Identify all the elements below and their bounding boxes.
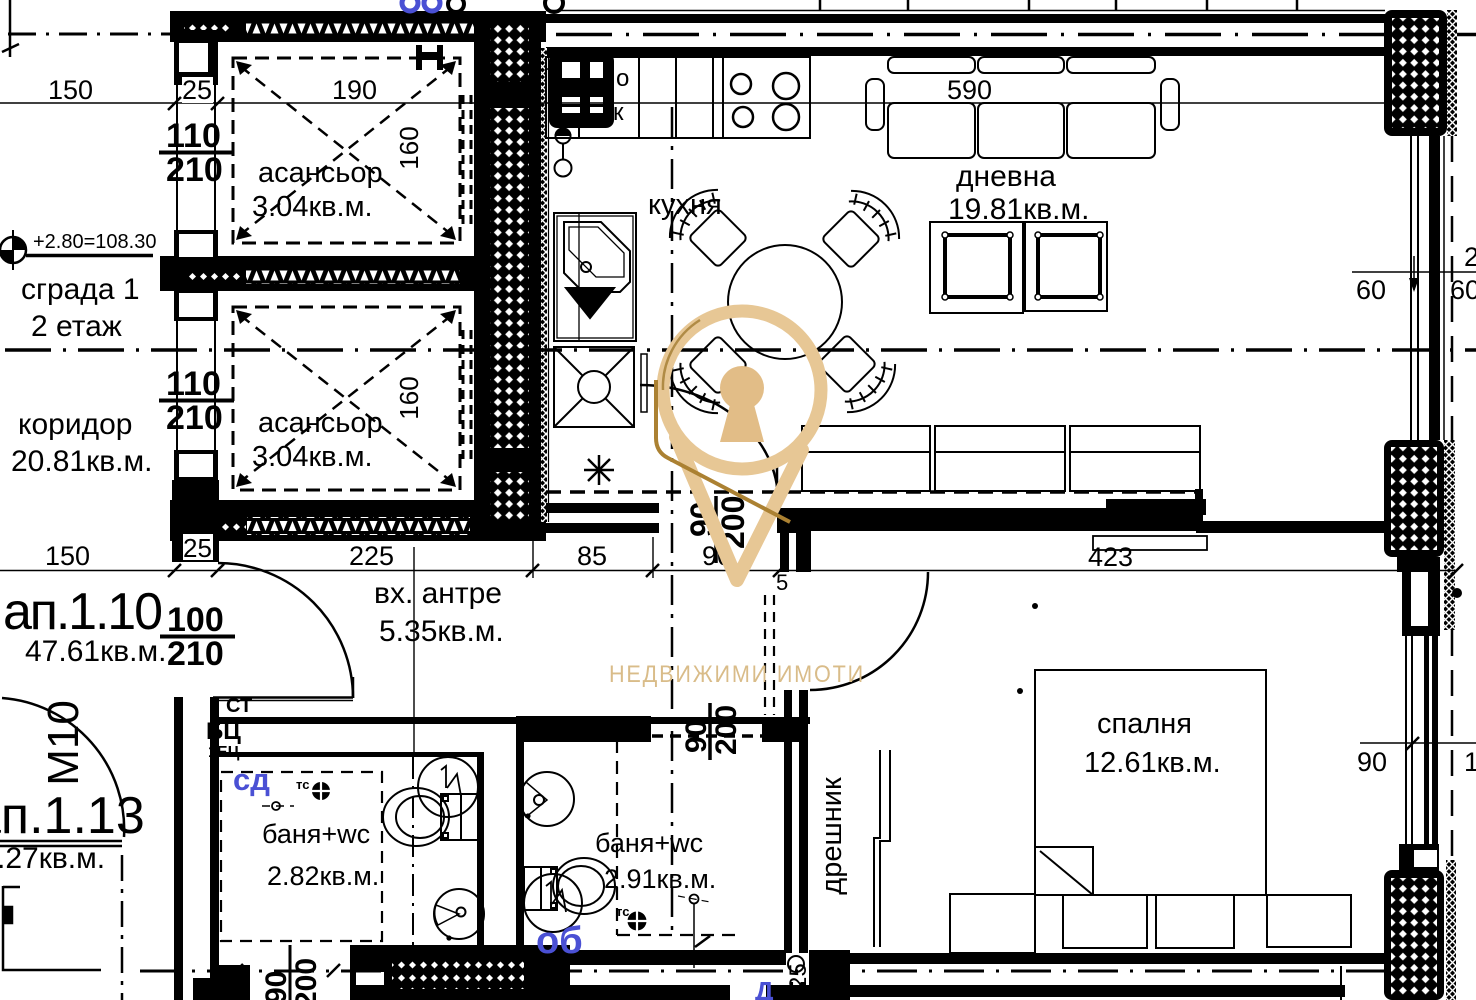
svg-text:+2.80=108.30: +2.80=108.30 — [33, 231, 156, 253]
svg-text:вх. антре: вх. антре — [374, 577, 502, 610]
svg-text:90: 90 — [260, 971, 293, 1000]
svg-text:110: 110 — [166, 365, 221, 403]
svg-text:спалня: спалня — [1097, 708, 1192, 740]
svg-text:ИА: ИА — [788, 976, 826, 1000]
svg-text:сд: сд — [233, 762, 270, 797]
svg-text:60: 60 — [1356, 275, 1386, 305]
svg-text:60: 60 — [1450, 275, 1476, 305]
svg-text:5.35кв.м.: 5.35кв.м. — [379, 615, 504, 648]
svg-text:100: 100 — [167, 601, 224, 639]
svg-text:кухня: кухня — [648, 189, 722, 221]
svg-text:210: 210 — [167, 635, 224, 673]
svg-text:110: 110 — [166, 117, 221, 155]
svg-text:коридор: коридор — [18, 408, 132, 441]
svg-text:об: об — [536, 920, 583, 962]
svg-text:90: 90 — [1357, 747, 1387, 777]
svg-text:баня+wc: баня+wc — [595, 828, 703, 858]
svg-text:190: 190 — [332, 75, 377, 105]
svg-text:2.82кв.м.: 2.82кв.м. — [267, 861, 379, 891]
svg-text:160: 160 — [394, 126, 424, 169]
svg-text:85: 85 — [577, 541, 607, 571]
svg-text:дневна: дневна — [956, 160, 1056, 193]
svg-text:160: 160 — [394, 376, 424, 419]
svg-text:ап.1.10: ап.1.10 — [3, 583, 163, 641]
svg-text:3.04кв.м.: 3.04кв.м. — [252, 441, 373, 473]
svg-text:2 етаж: 2 етаж — [31, 310, 122, 343]
svg-text:НЕДВИЖИМИ ИМОТИ: НЕДВИЖИМИ ИМОТИ — [609, 661, 865, 688]
svg-text:12.61кв.м.: 12.61кв.м. — [1084, 747, 1221, 779]
svg-text:баня+wc: баня+wc — [262, 819, 370, 849]
svg-text:2: 2 — [1464, 242, 1476, 272]
svg-text:210: 210 — [166, 399, 223, 437]
svg-text:СТ: СТ — [226, 695, 252, 717]
svg-text:о: о — [616, 65, 629, 92]
svg-text:1ЕЦ: 1ЕЦ — [208, 744, 240, 761]
svg-text:3.04кв.м.: 3.04кв.м. — [252, 191, 373, 223]
svg-text:5: 5 — [776, 570, 788, 595]
svg-text:тс: тс — [296, 777, 309, 792]
svg-text:225: 225 — [349, 541, 394, 571]
svg-text:М10: М10 — [39, 700, 88, 786]
svg-text:Д: Д — [755, 976, 774, 1000]
svg-text:25: 25 — [182, 75, 212, 105]
svg-text:дрешник: дрешник — [816, 777, 848, 895]
svg-text:47.61кв.м.: 47.61кв.м. — [25, 635, 166, 668]
svg-text:2.91кв.м.: 2.91кв.м. — [604, 864, 716, 894]
svg-text:.27кв.м.: .27кв.м. — [0, 842, 105, 875]
svg-text:200: 200 — [290, 958, 323, 1000]
svg-text:20.81кв.м.: 20.81кв.м. — [11, 445, 152, 478]
svg-text:150: 150 — [48, 75, 93, 105]
svg-text:423: 423 — [1088, 542, 1133, 572]
svg-text:асансьор: асансьор — [258, 157, 383, 189]
svg-text:150: 150 — [45, 541, 90, 571]
svg-text:90: 90 — [680, 720, 713, 753]
svg-text:590: 590 — [947, 75, 992, 105]
svg-text:сграда 1: сграда 1 — [21, 273, 140, 306]
svg-text:19.81кв.м.: 19.81кв.м. — [948, 193, 1089, 226]
svg-text:25: 25 — [183, 533, 212, 563]
svg-text:ап.1.13: ап.1.13 — [0, 787, 145, 845]
svg-text:200: 200 — [710, 705, 743, 755]
svg-text:асансьор: асансьор — [258, 407, 383, 439]
svg-text:1: 1 — [1464, 747, 1476, 777]
svg-text:210: 210 — [166, 151, 223, 189]
svg-text:БЦ: БЦ — [206, 718, 241, 745]
